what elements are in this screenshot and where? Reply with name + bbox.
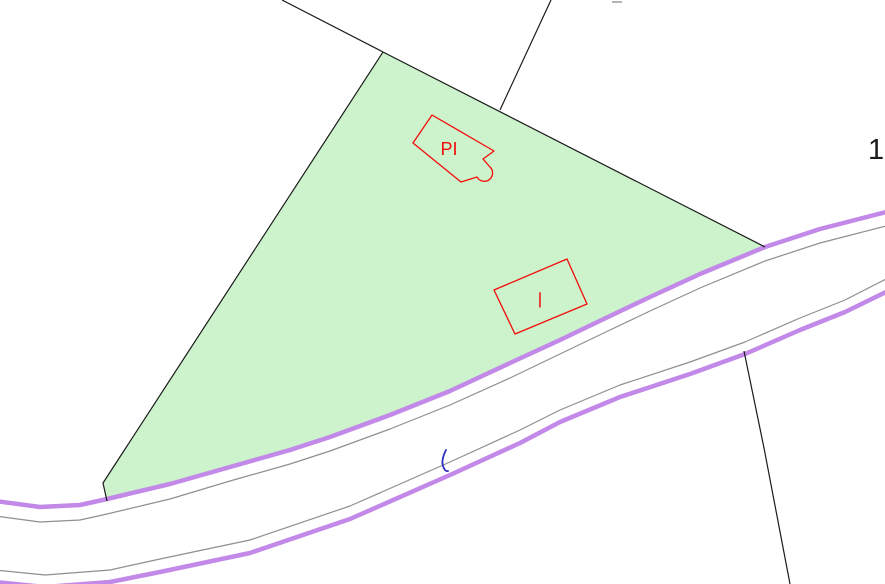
- parcel-boundary-line: [282, 0, 383, 52]
- building-label-pi: PI: [440, 139, 457, 159]
- highlighted-parcel[interactable]: [103, 52, 765, 499]
- parcel-boundary-line: [744, 351, 790, 584]
- parcel-boundary-line: [500, 0, 551, 110]
- map-canvas[interactable]: PI / 1: [0, 0, 885, 584]
- map-viewport: PI / 1: [0, 0, 885, 584]
- parcel-layer: [103, 52, 765, 499]
- culvert-tick-mark: [442, 450, 448, 471]
- parcel-number-label: 1: [868, 134, 884, 166]
